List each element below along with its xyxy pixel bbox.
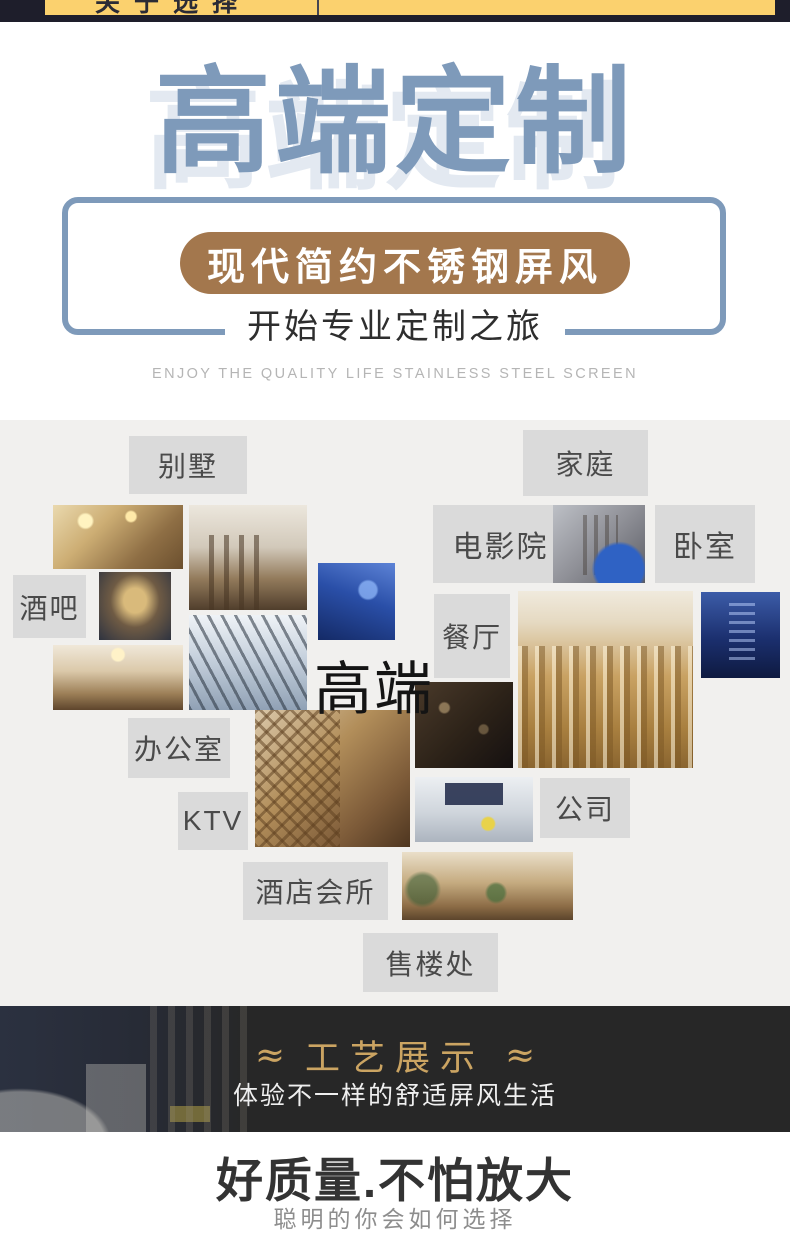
scene-label-bar: 酒吧 — [13, 575, 86, 638]
photo-gold-round-screen — [518, 591, 693, 768]
scene-center-highlight: 高端 — [314, 642, 426, 726]
product-detail-page: 关于选择 高端定制 高端定制 现代简约不锈钢屏风 开始专业定制之旅 ENJOY … — [0, 0, 790, 1246]
hero-tagline-en: ENJOY THE QUALITY LIFE STAINLESS STEEL S… — [0, 366, 790, 382]
hero-subtitle: 开始专业定制之旅 — [225, 306, 565, 348]
photo-corridor-screen — [189, 505, 307, 610]
craft-title-row: ≈ 工艺展示 ≈ — [0, 1030, 790, 1081]
photo-stair-blue-chair — [553, 505, 645, 583]
scene-label-ktv: KTV — [178, 792, 248, 850]
photo-bar-dome — [99, 572, 171, 640]
hero-title: 高端定制 — [0, 52, 790, 192]
quality-section: 好质量.不怕放大 聪明的你会如何选择 — [0, 1132, 790, 1246]
tab-about-selection[interactable]: 关于选择 — [95, 0, 251, 15]
photo-grand-hall — [53, 645, 183, 710]
scene-label-cinema: 电影院 — [433, 505, 568, 583]
scene-label-company: 公司 — [540, 778, 630, 838]
photo-lattice-canopy — [189, 615, 307, 710]
photo-reception-lobby — [402, 852, 573, 920]
photo-bedroom-suite — [415, 777, 533, 842]
scene-label-office: 办公室 — [128, 718, 230, 778]
top-bar: 关于选择 — [0, 0, 790, 22]
tab-divider — [317, 0, 319, 15]
swash-ornament-left-icon: ≈ — [255, 1038, 285, 1074]
top-tabstrip: 关于选择 — [45, 0, 775, 15]
craft-subtitle: 体验不一样的舒适屏风生活 — [0, 1076, 790, 1112]
photo-lobby-chandelier — [53, 505, 183, 569]
scene-label-villa: 别墅 — [129, 436, 247, 494]
craft-title: 工艺展示 — [305, 1030, 485, 1081]
scene-label-sales-office: 售楼处 — [363, 933, 498, 992]
product-category-badge: 现代简约不锈钢屏风 — [180, 232, 630, 294]
craft-display-band: ≈ 工艺展示 ≈ 体验不一样的舒适屏风生活 — [0, 1006, 790, 1132]
scene-label-bedroom: 卧室 — [655, 505, 755, 583]
photo-wood-lattice-room — [255, 710, 410, 847]
swash-ornament-right-icon: ≈ — [505, 1038, 535, 1074]
scene-label-restaurant: 餐厅 — [434, 594, 510, 678]
scenes-collage-section: 别墅 家庭 电影院 卧室 酒吧 餐厅 办公室 KTV 公司 酒店会所 售楼处 高… — [0, 420, 790, 1006]
scene-label-hotel-club: 酒店会所 — [243, 862, 388, 920]
scene-label-family: 家庭 — [523, 430, 648, 496]
hero-section: 高端定制 高端定制 现代简约不锈钢屏风 开始专业定制之旅 ENJOY THE Q… — [0, 22, 790, 420]
photo-hotel-tower — [701, 592, 780, 678]
photo-city-night — [318, 563, 395, 640]
quality-subline: 聪明的你会如何选择 — [0, 1200, 790, 1234]
